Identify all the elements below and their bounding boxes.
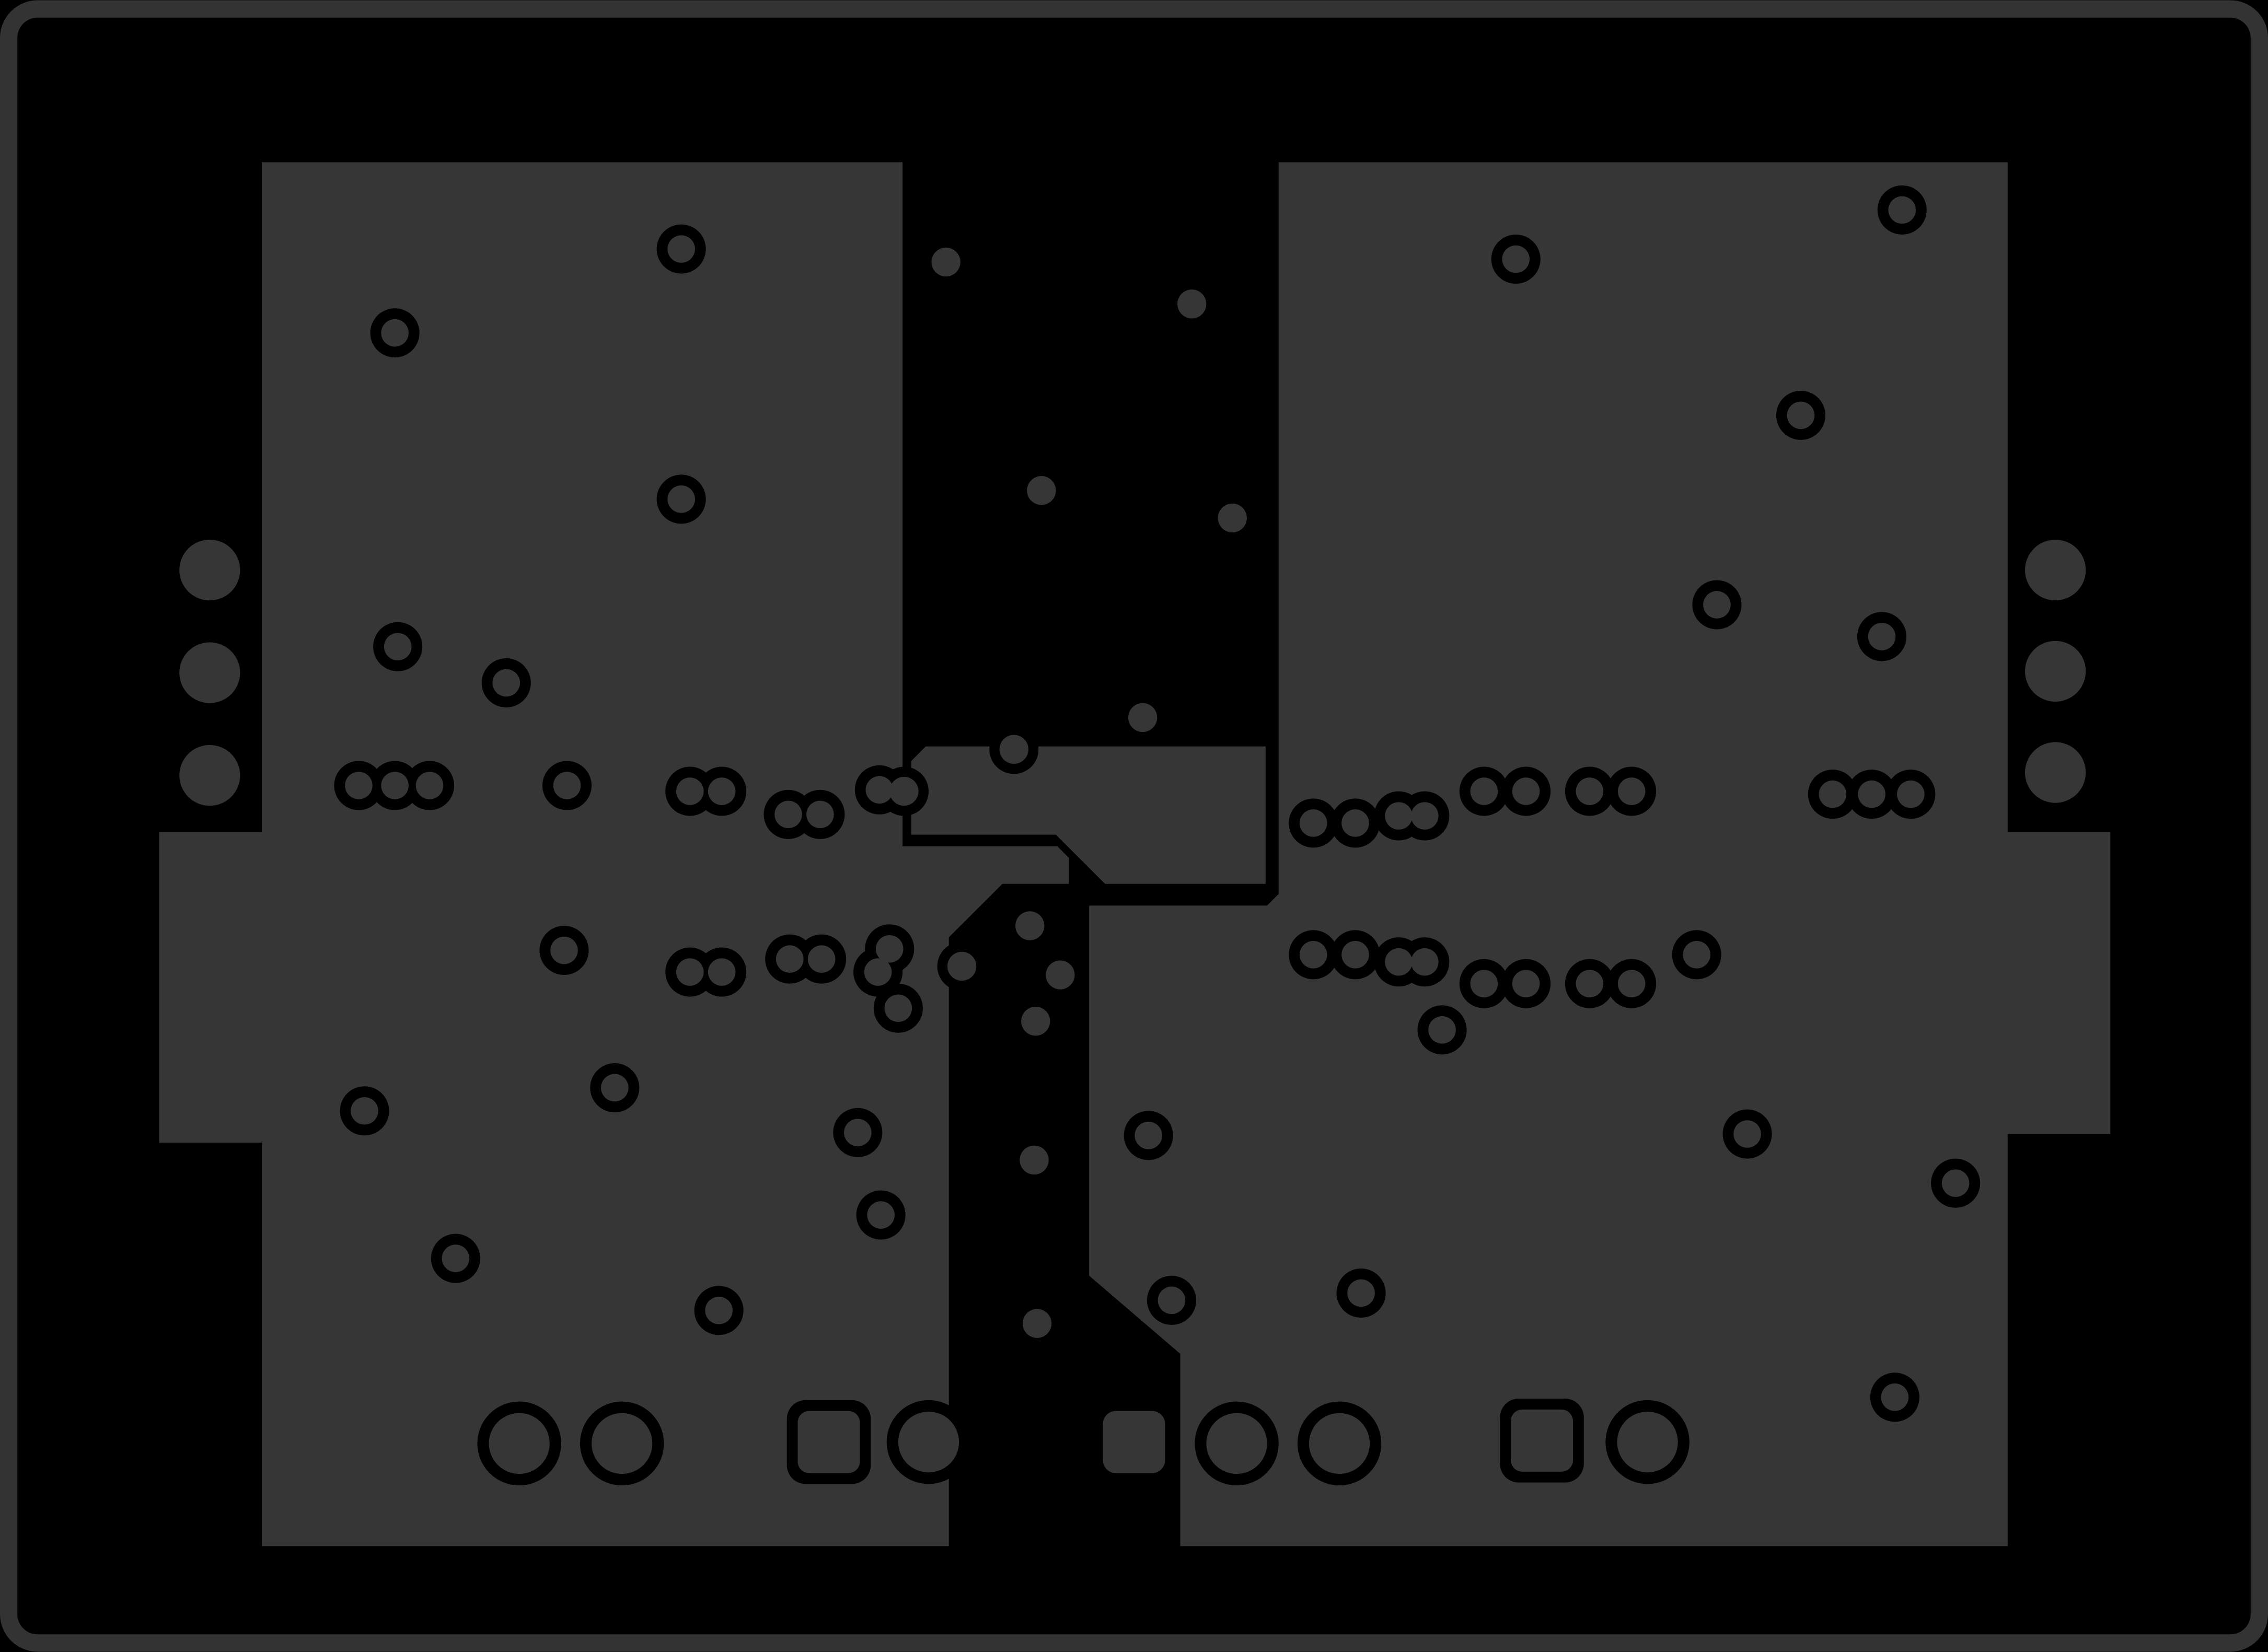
via-land xyxy=(1385,948,1413,976)
via-land xyxy=(774,801,802,829)
via-land xyxy=(708,777,736,805)
edge-connector-pad xyxy=(179,642,240,703)
via-land xyxy=(416,772,444,799)
via-land xyxy=(1428,1016,1456,1044)
pcb-layer-view xyxy=(0,0,2268,1652)
via-land xyxy=(1347,1279,1375,1307)
via-land xyxy=(676,777,704,805)
via-land xyxy=(1502,246,1530,273)
isolated-pad xyxy=(1177,289,1206,318)
pcb-copper-layer xyxy=(0,0,2268,1652)
via-land xyxy=(885,994,912,1022)
drill-land xyxy=(898,1412,959,1472)
via-land xyxy=(705,1297,733,1324)
via-land xyxy=(866,776,894,804)
square-pad-land xyxy=(1511,1410,1573,1472)
edge-connector-pad xyxy=(179,540,240,600)
via-land xyxy=(601,1074,629,1102)
via-land xyxy=(1512,777,1540,805)
drill-land xyxy=(1309,1413,1370,1474)
via-land xyxy=(867,1201,895,1229)
drill-land xyxy=(1206,1413,1267,1474)
via-land xyxy=(1888,196,1916,224)
via-land xyxy=(1471,970,1498,997)
via-land xyxy=(1683,941,1710,969)
via-land xyxy=(1158,1287,1186,1314)
isolated-pad xyxy=(1218,504,1247,532)
isolated-pad xyxy=(932,248,961,276)
via-land xyxy=(1881,1383,1909,1411)
via-land xyxy=(550,937,578,964)
isolated-pad xyxy=(1015,911,1044,940)
isolated-square-pad xyxy=(1103,1411,1165,1473)
isolated-pad xyxy=(1021,1007,1050,1036)
via-land xyxy=(384,633,412,660)
via-land xyxy=(806,801,834,829)
isolated-pad xyxy=(1023,1309,1051,1337)
via-land xyxy=(844,1119,872,1146)
isolated-pad xyxy=(1000,735,1028,764)
via-land xyxy=(1135,1122,1162,1149)
isolated-pad xyxy=(947,952,976,981)
drill-land xyxy=(592,1413,652,1474)
drill-land xyxy=(489,1413,550,1474)
edge-connector-pad xyxy=(2025,742,2086,802)
via-land xyxy=(381,772,409,799)
via-land xyxy=(1942,1169,1970,1197)
via-land xyxy=(676,958,704,986)
via-land xyxy=(1411,948,1439,976)
edge-connector-pad xyxy=(2025,641,2086,702)
isolated-pad xyxy=(1046,960,1074,989)
via-land xyxy=(1618,777,1646,805)
isolated-pad xyxy=(889,777,918,806)
via-land xyxy=(1858,781,1885,808)
via-land xyxy=(1512,970,1540,997)
via-land xyxy=(1703,591,1731,619)
via-land xyxy=(1618,970,1646,997)
via-land xyxy=(1787,402,1815,429)
isolated-pad xyxy=(1020,1146,1048,1174)
via-land xyxy=(1819,781,1847,808)
via-land xyxy=(1300,809,1327,837)
via-land xyxy=(1471,777,1498,805)
via-land xyxy=(1868,623,1896,650)
via-land xyxy=(345,772,373,799)
via-land xyxy=(1341,941,1369,969)
edge-connector-pad xyxy=(179,745,240,806)
via-land xyxy=(1341,809,1369,837)
via-land xyxy=(351,1097,378,1125)
via-land xyxy=(1411,802,1439,830)
via-land xyxy=(667,485,695,513)
via-land xyxy=(492,669,520,697)
via-land xyxy=(1576,777,1604,805)
via-land xyxy=(776,945,804,973)
via-land xyxy=(808,945,836,973)
isolated-pad xyxy=(1027,476,1056,505)
via-land xyxy=(1897,781,1925,808)
via-land xyxy=(1576,970,1604,997)
via-land xyxy=(381,319,409,347)
edge-connector-pad xyxy=(2025,540,2086,600)
via-land xyxy=(553,772,581,799)
via-land xyxy=(1300,941,1327,969)
via-land xyxy=(708,958,736,986)
via-land xyxy=(667,235,695,263)
via-land xyxy=(864,958,892,986)
via-land xyxy=(1733,1120,1761,1148)
square-pad-land xyxy=(797,1411,860,1473)
via-land xyxy=(1385,802,1413,830)
isolated-pad xyxy=(1128,703,1157,732)
drill-land xyxy=(1617,1412,1677,1472)
via-land xyxy=(442,1244,470,1272)
